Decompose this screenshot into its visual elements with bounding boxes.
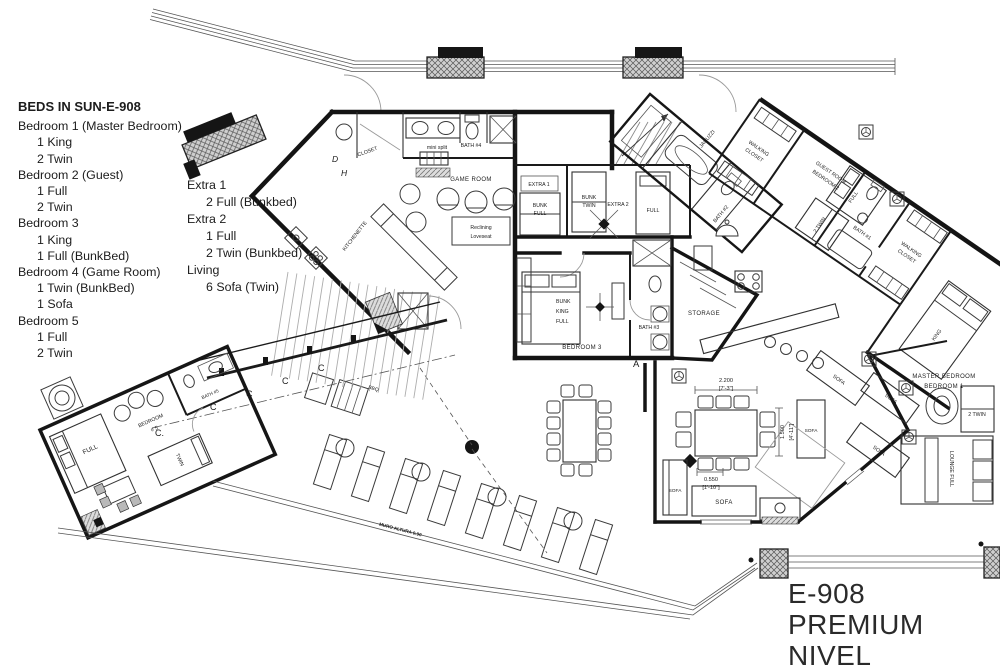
legend-item: Bedroom 2 (Guest) (18, 167, 182, 183)
extras-legend: Extra 1 2 Full (Bunkbed) Extra 2 1 Full … (187, 177, 302, 296)
label-full-guest: FULL (848, 190, 860, 204)
kitchen (694, 246, 839, 369)
dim-0550-text: 0.550 (704, 477, 718, 483)
label-bunk-twin-1: BUNK (582, 195, 597, 201)
extras-item: Extra 1 (187, 177, 302, 194)
extras-item: 2 Twin (Bunkbed) (206, 245, 302, 262)
living-room (655, 341, 947, 524)
note-muro: MURO ALTURA 0.90 (379, 522, 423, 538)
label-bunk-full-2: FULL (534, 211, 547, 217)
label-bath3: BATH #3 (639, 325, 660, 331)
legend-item: Bedroom 3 (18, 215, 182, 231)
label-bunk3-3: FULL (556, 319, 569, 325)
label-bbq: BBQ (367, 385, 379, 394)
label-bunk3-2: KING (556, 309, 569, 315)
label-bath2: BATH #2 (712, 204, 730, 224)
sheet-level: PREMIUM NIVEL (788, 609, 1000, 671)
label-storage: STORAGE (688, 311, 720, 317)
label-reclining-1: Reclining (470, 225, 491, 231)
label-game-room: GAME ROOM (450, 177, 492, 183)
outdoor-table (563, 400, 596, 462)
label-reclining-2: Loveseat (470, 234, 492, 240)
extras-item: Extra 2 (187, 211, 302, 228)
label-king: KING (931, 329, 943, 343)
label-closet: CLOSET (357, 145, 379, 158)
label-twin-b5: TWIN (174, 453, 185, 468)
legend-item: Bedroom 4 (Game Room) (18, 264, 182, 280)
label-full-b5: FULL (82, 443, 100, 456)
site-boundary-top (150, 9, 895, 112)
dim-2200-ft: [7'-3"] (719, 386, 734, 392)
label-bunk3-1: BUNK (556, 299, 571, 305)
marker-c: C (282, 376, 289, 386)
legend-item: 1 Full (BunkBed) (37, 248, 182, 264)
marker-c: C (318, 363, 325, 373)
label-extra2: EXTRA 2 (607, 202, 628, 208)
label-kitchenette: KITCHENETTE (342, 220, 369, 253)
dim-1500-ft: [4'-11"] (789, 423, 795, 440)
extras-item: Living (187, 262, 302, 279)
bbq-area (305, 371, 369, 416)
bedroom3-furniture (517, 258, 624, 344)
column (172, 104, 269, 180)
sheet-title: E-908 PREMIUM NIVEL (788, 578, 1000, 671)
extras-item: 2 Full (Bunkbed) (206, 194, 302, 211)
bedroom5-block (40, 347, 275, 538)
marker-c: C (210, 402, 217, 412)
bath3-fixtures (633, 240, 671, 350)
label-lounge: LOUNGE FULL (948, 451, 954, 487)
legend-title: BEDS IN SUN-E-908 (18, 99, 182, 115)
master-bedroom-furniture (899, 281, 994, 432)
dim-0550-line (697, 468, 723, 476)
label-bunk-twin-2: TWIN (582, 203, 596, 209)
compass-symbol (590, 210, 618, 238)
fireplace (760, 498, 800, 524)
dining-table (695, 410, 757, 456)
legend-item: Bedroom 5 (18, 313, 182, 329)
tree-dot (465, 440, 479, 454)
marker-h: H (341, 168, 348, 178)
label-sofa: SOFA (805, 428, 819, 434)
legend-item: 1 Full (37, 183, 182, 199)
label-master-1: MASTER BEDROOM (912, 374, 975, 380)
label-bath5: BATH #5 (201, 388, 220, 400)
sheet-code: E-908 (788, 578, 1000, 609)
label-bedroom3: BEDROOM 3 (562, 345, 602, 351)
marker-c: C (246, 389, 253, 399)
extras-item: 6 Sofa (Twin) (206, 279, 302, 296)
marker-a: A (633, 359, 640, 370)
label-bunk-full-1: BUNK (533, 203, 548, 209)
terrace (420, 368, 611, 553)
legend-item: 1 King (37, 134, 182, 150)
fan-symbol (586, 293, 614, 321)
dim-2200-text: 2.200 (719, 378, 733, 384)
label-sofa: SOFA (831, 374, 846, 387)
legend-item: 2 Twin (37, 345, 182, 361)
lounge-bed (901, 436, 993, 504)
label-full-extra2: FULL (647, 208, 660, 214)
legend-item: Bedroom 1 (Master Bedroom) (18, 118, 182, 134)
legend-item: 1 King (37, 232, 182, 248)
site-boundary-bottom (58, 481, 758, 619)
label-sofa: SOFA (715, 500, 733, 506)
beds-legend: BEDS IN SUN-E-908 Bedroom 1 (Master Bedr… (18, 99, 182, 361)
column (427, 47, 484, 78)
right-wing (676, 99, 1000, 408)
column (623, 47, 683, 78)
marker-d: D (332, 154, 338, 164)
legend-item: 2 Twin (37, 199, 182, 215)
bell-symbol (716, 220, 738, 236)
label-master-2: BEDROOM 1 (924, 384, 964, 390)
dim-1500-text: 1.500 (780, 425, 786, 439)
door-arc (344, 75, 381, 112)
label-2twin-master: 2 TWIN (968, 412, 986, 418)
marker-c-dot: C. (155, 428, 164, 438)
label-mini-split: mini split (427, 145, 448, 151)
dim-0550-ft: [1'-10"] (702, 485, 720, 491)
legend-item: 1 Twin (BunkBed) (37, 280, 182, 296)
label-sofa: SOFA (669, 488, 683, 494)
legend-item: 2 Twin (37, 151, 182, 167)
title-block (749, 542, 1000, 579)
label-bath4: BATH #4 (461, 143, 482, 149)
extras-item: 1 Full (206, 228, 302, 245)
legend-item: 1 Sofa (37, 296, 182, 312)
legend-item: 1 Full (37, 329, 182, 345)
sun-loungers (313, 434, 612, 574)
door-arc (699, 75, 736, 112)
label-extra1: EXTRA 1 (528, 182, 549, 188)
